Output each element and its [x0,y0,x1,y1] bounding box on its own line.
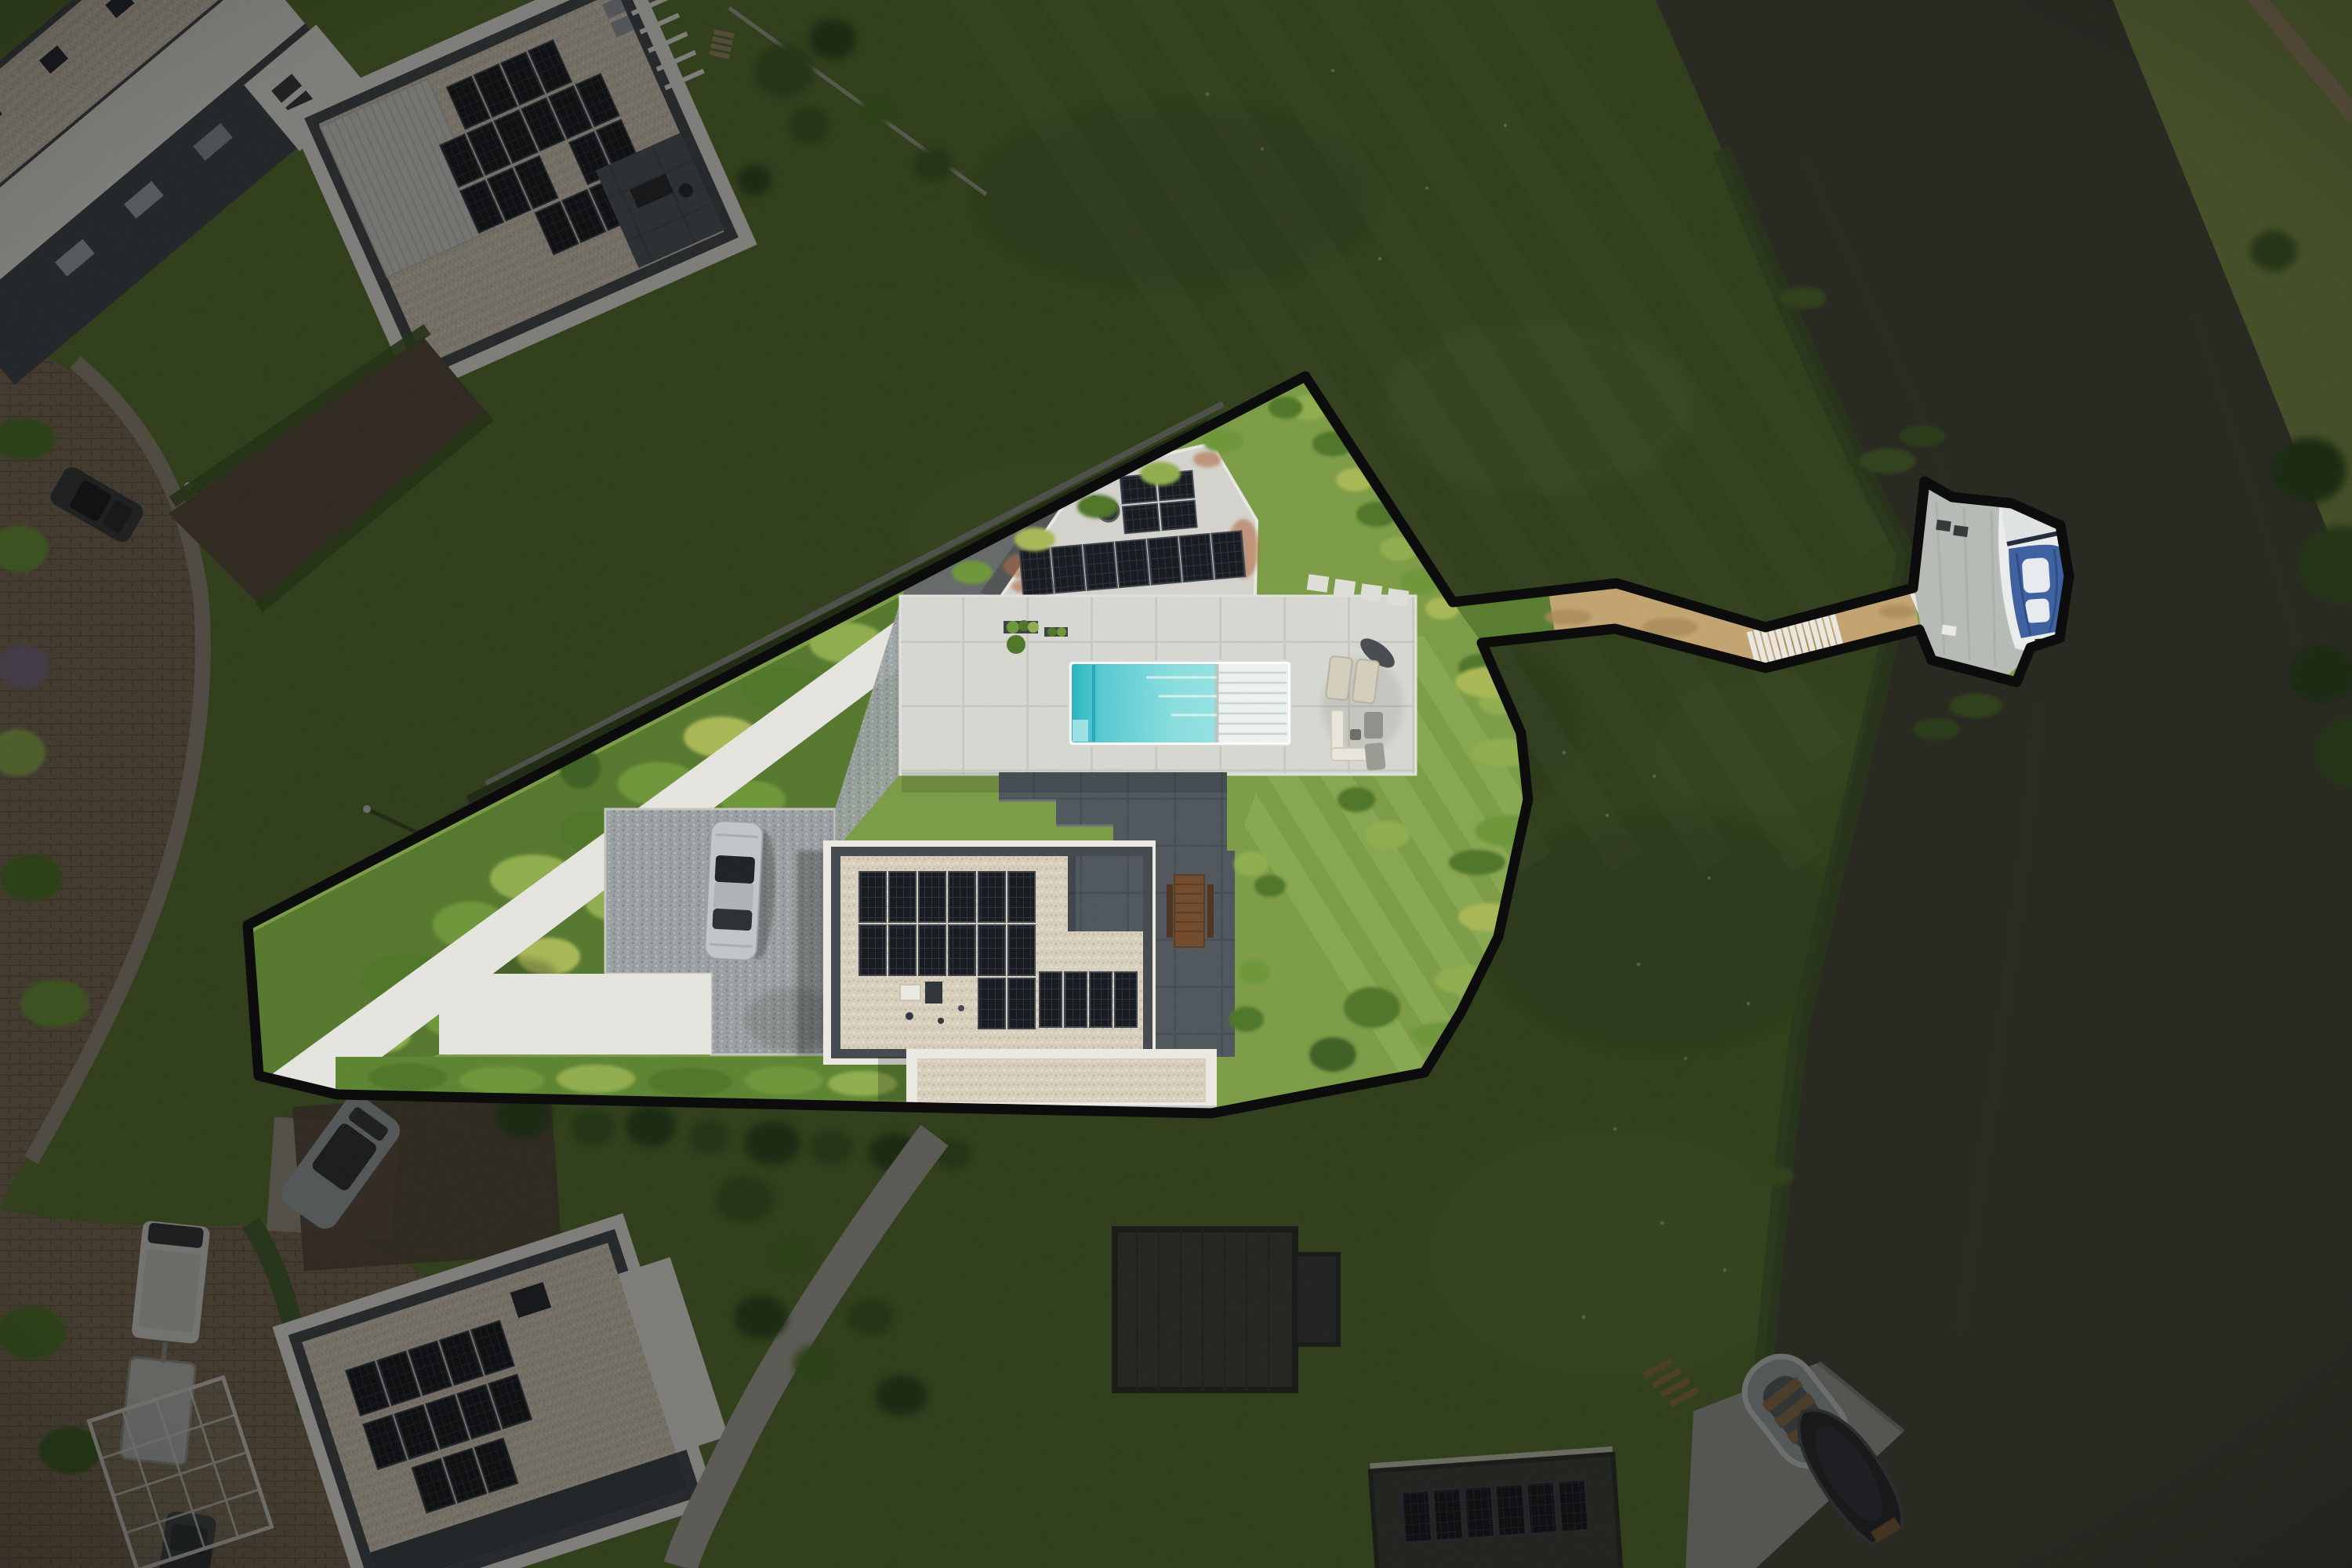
vignette [0,0,2352,1568]
aerial-photo [0,0,2352,1568]
aerial-photo-canvas [0,0,2352,1568]
